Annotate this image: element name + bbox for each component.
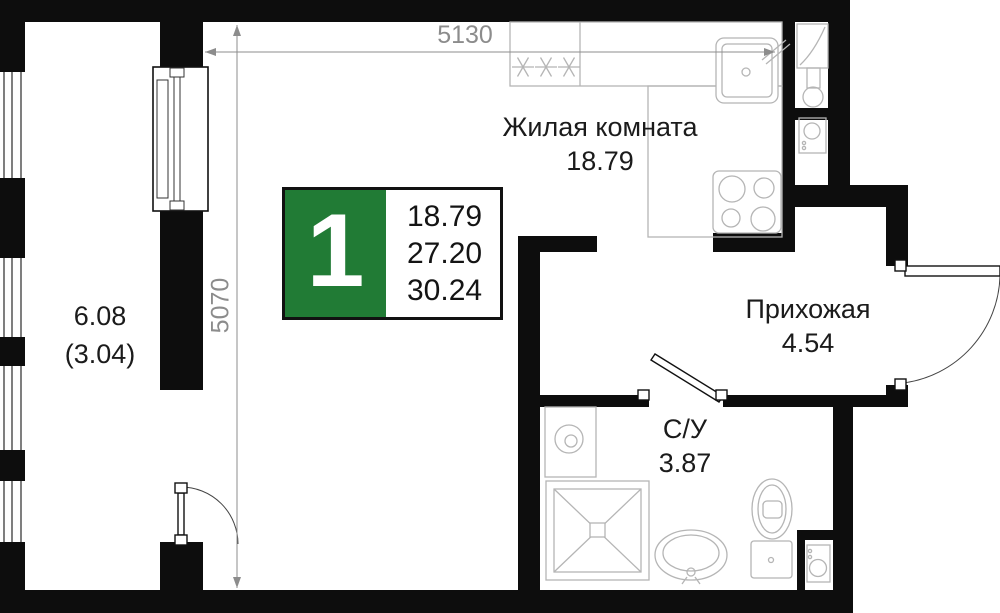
boiler-icon bbox=[797, 24, 828, 107]
dimension-width-label: 5130 bbox=[405, 21, 525, 50]
badge-area-living: 18.79 bbox=[407, 198, 500, 235]
room-area-living: 18.79 bbox=[455, 144, 745, 178]
balcony-door bbox=[175, 483, 238, 545]
shaft-washing-machine-icon bbox=[799, 118, 826, 153]
washing-machine-icon bbox=[545, 407, 596, 477]
balcony-glazing bbox=[4, 12, 21, 600]
badge-area-main: 27.20 bbox=[407, 235, 500, 272]
bath-sink-icon bbox=[655, 530, 727, 584]
badge-room-count: 1 bbox=[285, 190, 386, 317]
toilet-icon bbox=[751, 479, 792, 578]
apartment-badge: 1 18.79 27.20 30.24 bbox=[282, 187, 503, 320]
room-label-balcony: 6.08 (3.04) bbox=[25, 297, 175, 373]
shower-icon bbox=[546, 481, 649, 580]
room-area-bath: 3.87 bbox=[630, 446, 740, 480]
room-name-hall: Прихожая bbox=[713, 292, 903, 326]
room-name-bath: С/У bbox=[630, 412, 740, 446]
partition-window bbox=[153, 67, 208, 211]
meter-box-icon bbox=[807, 545, 830, 582]
stove-icon bbox=[713, 171, 781, 233]
room-area-hall: 4.54 bbox=[713, 326, 903, 360]
entrance-door bbox=[895, 260, 1000, 390]
room-area-balcony: 6.08 bbox=[25, 297, 175, 335]
badge-areas: 18.79 27.20 30.24 bbox=[386, 190, 500, 317]
badge-area-total: 30.24 bbox=[407, 272, 500, 309]
dimension-height-label: 5070 bbox=[207, 246, 236, 366]
room-name-living: Жилая комната bbox=[455, 110, 745, 144]
floor-plan: 5130 5070 Жилая комната 18.79 Прихожая 4… bbox=[0, 0, 1000, 613]
bathroom-door bbox=[638, 354, 727, 402]
fridge-snowflakes-icon bbox=[512, 58, 580, 77]
room-label-hall: Прихожая 4.54 bbox=[713, 292, 903, 360]
room-label-bath: С/У 3.87 bbox=[630, 412, 740, 480]
room-area-balcony-coef: (3.04) bbox=[25, 335, 175, 373]
kitchen-sink-icon bbox=[716, 38, 790, 103]
room-label-living: Жилая комната 18.79 bbox=[455, 110, 745, 178]
